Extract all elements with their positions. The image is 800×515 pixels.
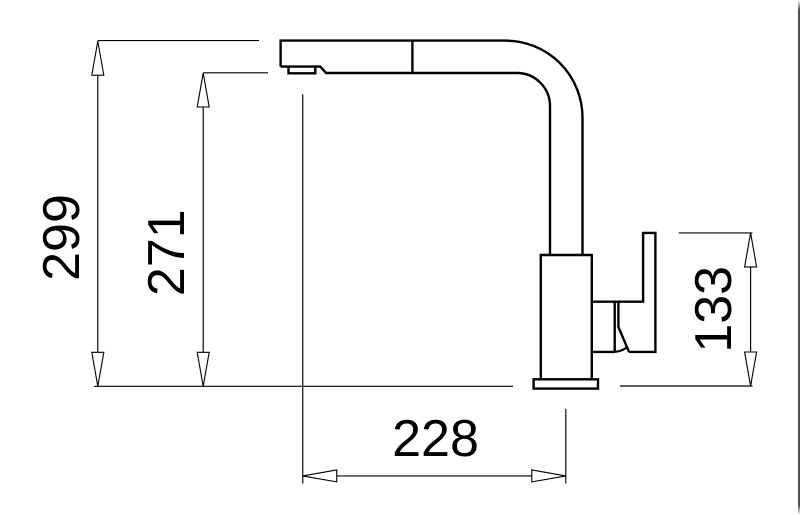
svg-text:299: 299 <box>33 194 91 281</box>
svg-text:228: 228 <box>392 410 479 468</box>
svg-text:133: 133 <box>685 266 743 353</box>
svg-text:271: 271 <box>138 209 196 296</box>
